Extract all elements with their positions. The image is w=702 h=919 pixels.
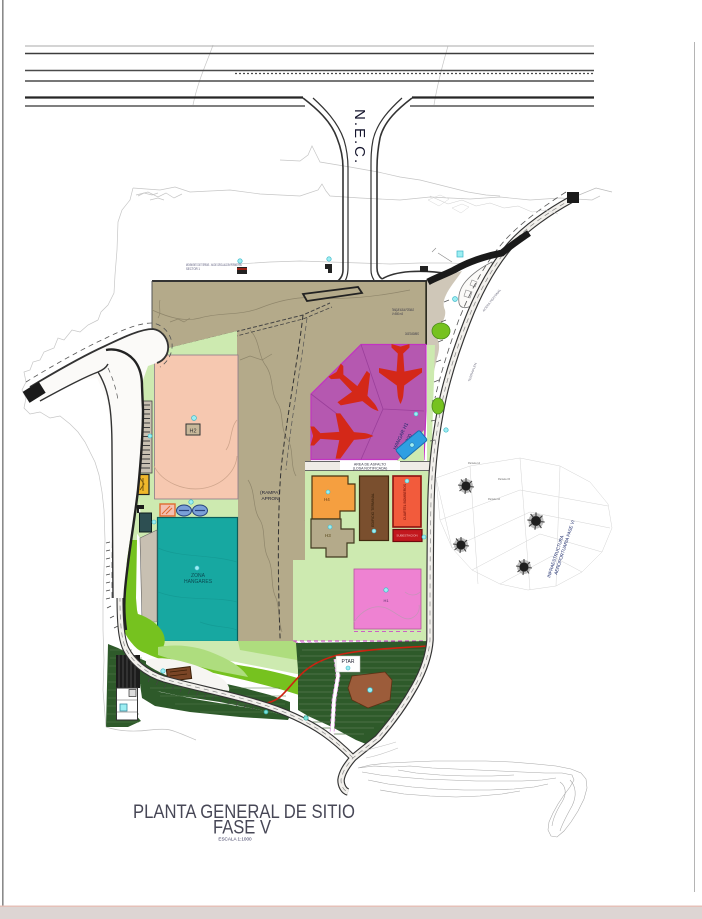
svg-text:H1: H1	[383, 598, 389, 603]
svg-text:H2: H2	[190, 429, 197, 435]
svg-text:(LOSA NOTIFICADA): (LOSA NOTIFICADA)	[353, 467, 388, 471]
svg-text:SECTOR 1: SECTOR 1	[186, 267, 200, 271]
svg-text:Parcela 16: Parcela 16	[488, 497, 500, 501]
svg-text:Parcela 15: Parcela 15	[498, 477, 510, 481]
svg-text:ESCALA 1:1000: ESCALA 1:1000	[218, 837, 252, 842]
svg-text:V=500 m3: V=500 m3	[392, 312, 403, 316]
svg-text:FASE V: FASE V	[213, 817, 271, 839]
svg-text:PTAR: PTAR	[342, 659, 355, 665]
svg-text:(RAMPA): (RAMPA)	[260, 490, 280, 496]
svg-text:SUBESTACION: SUBESTACION	[396, 534, 417, 538]
svg-text:H3: H3	[325, 533, 331, 538]
svg-text:Parcela 14: Parcela 14	[468, 461, 480, 465]
svg-text:CASETA BOMBEO: CASETA BOMBEO	[405, 332, 419, 336]
svg-text:APRON: APRON	[261, 496, 279, 502]
svg-text:CUARTEL BOMBEROS: CUARTEL BOMBEROS	[403, 483, 407, 520]
svg-text:HANGARES: HANGARES	[184, 579, 213, 585]
svg-text:N.E.C.: N.E.C.	[351, 109, 368, 165]
svg-text:H4: H4	[324, 497, 330, 502]
svg-text:EDIFICIO TERMINAL: EDIFICIO TERMINAL	[371, 493, 375, 527]
